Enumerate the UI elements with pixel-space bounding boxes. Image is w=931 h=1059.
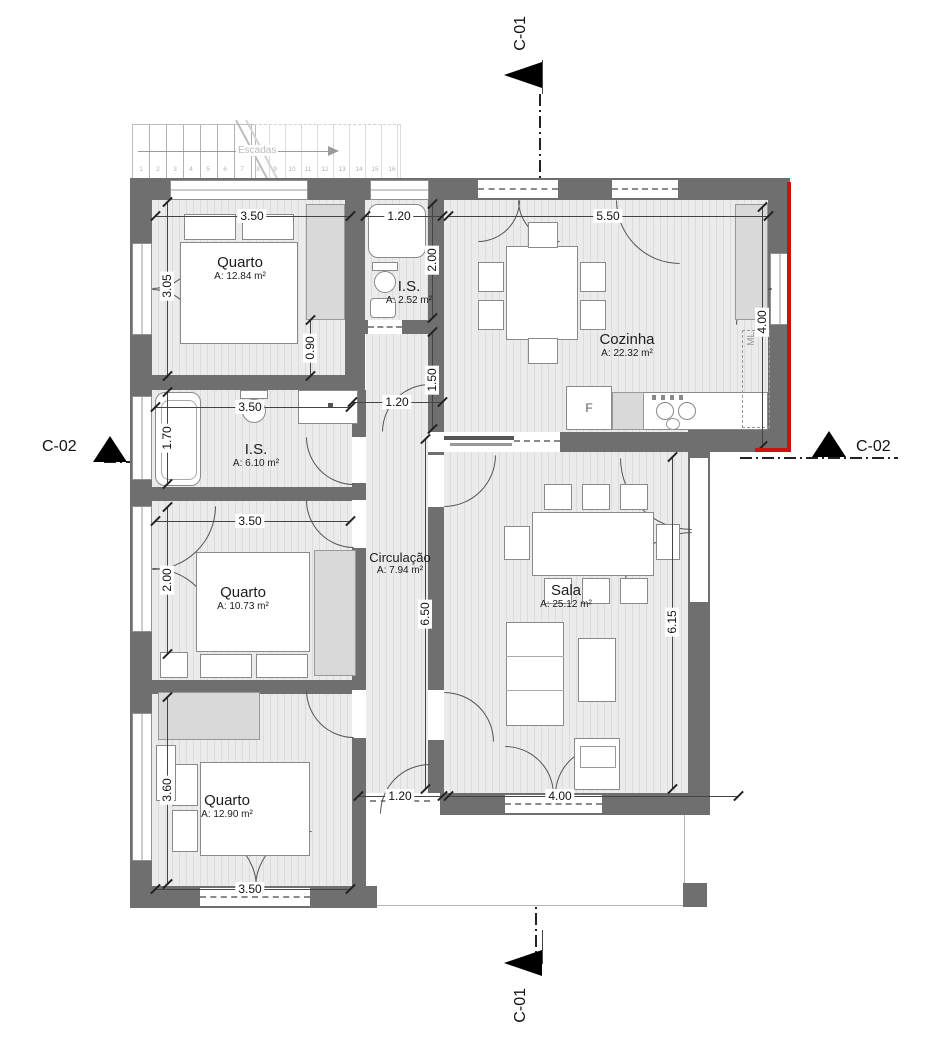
bed-pillow xyxy=(184,214,236,240)
section-label-c02-left: C-02 xyxy=(42,438,77,456)
stair-number: 12 xyxy=(318,166,332,173)
door-threshold-quarto3 xyxy=(200,896,310,898)
door-opening-sala-top xyxy=(428,455,444,507)
door-opening-sala-lower xyxy=(428,690,444,740)
dimension-label: 6.50 xyxy=(418,599,432,628)
stair-number: 5 xyxy=(201,166,215,173)
stair-number: 16 xyxy=(385,166,399,173)
wall-corridor-right-upper xyxy=(428,200,444,432)
room-area: A: 12.90 m² xyxy=(201,809,253,820)
window-quarto1-left xyxy=(132,243,152,335)
stair-number: 11 xyxy=(301,166,315,173)
sofa-cushion-line xyxy=(506,690,564,691)
kitchen-counter-segment xyxy=(612,392,644,430)
room-name: I.S. xyxy=(386,278,432,295)
room-label-quarto2: Quarto A: 10.73 m² xyxy=(217,584,269,612)
door-opening-quarto3 xyxy=(352,690,366,738)
wardrobe xyxy=(314,550,356,676)
room-name: Sala xyxy=(540,582,592,599)
chair xyxy=(544,484,572,510)
dimension-label: 0.90 xyxy=(303,333,317,362)
door-threshold-sala xyxy=(505,803,602,805)
dimension-label: 3.60 xyxy=(160,775,174,804)
stair-number: 13 xyxy=(335,166,349,173)
stair-number: 10 xyxy=(285,166,299,173)
sliding-door xyxy=(450,443,512,446)
room-label-sala: Sala A: 25.12 m² xyxy=(540,582,592,610)
stairs-direction-line xyxy=(138,151,328,152)
wardrobe xyxy=(158,692,260,740)
dimension-label: 1.20 xyxy=(384,209,413,223)
door-opening-sala-right xyxy=(690,458,708,602)
side-table xyxy=(578,638,616,702)
sliding-door xyxy=(444,436,514,440)
wall-cozinha-sala xyxy=(560,432,690,452)
section-line-c02-right xyxy=(740,457,898,459)
bed-pillow xyxy=(256,654,308,678)
dimension-label: 6.15 xyxy=(665,607,679,636)
dining-table xyxy=(506,246,578,340)
fridge: F xyxy=(566,386,612,430)
room-area: A: 10.73 m² xyxy=(217,601,269,612)
section-label-c01-bottom: C-01 xyxy=(512,988,530,1023)
dimension-label: 2.00 xyxy=(425,245,439,274)
door-threshold-cozinha xyxy=(478,188,558,190)
wardrobe xyxy=(306,204,345,320)
dimension-label: 1.20 xyxy=(385,789,414,803)
section-label-c02-right: C-02 xyxy=(856,438,891,456)
room-name: Quarto xyxy=(217,584,269,601)
room-name: Quarto xyxy=(214,254,266,271)
dimension-label: 5.50 xyxy=(593,209,622,223)
stair-number: 2 xyxy=(151,166,165,173)
floor-plan-canvas: C-01 C-01 C-02 C-02 Escadas 1 2 3 4 5 6 … xyxy=(0,0,931,1059)
chair xyxy=(504,526,530,560)
bed-pillow xyxy=(200,654,252,678)
dimension-line xyxy=(448,796,738,797)
room-name: Circulação xyxy=(369,550,430,565)
dining-table xyxy=(532,512,654,576)
chair xyxy=(478,262,504,292)
door-threshold-is-small xyxy=(368,326,402,328)
dimension-label: 3.50 xyxy=(235,514,264,528)
stair-number: 6 xyxy=(218,166,232,173)
chair xyxy=(528,222,558,248)
stair-number: 14 xyxy=(352,166,366,173)
dimension-label: 1.20 xyxy=(382,395,411,409)
dimension-label: 1.70 xyxy=(160,423,174,452)
chair xyxy=(620,484,648,510)
sink-bowl xyxy=(678,402,696,420)
sofa xyxy=(506,622,564,726)
dimension-label: 4.00 xyxy=(755,307,769,336)
chair xyxy=(620,578,648,604)
dimension-label: 3.05 xyxy=(160,271,174,300)
kitchen-cabinet xyxy=(735,204,768,320)
room-name: Cozinha xyxy=(599,331,654,348)
room-area: A: 25.12 m² xyxy=(540,599,592,610)
wall-is-main-bottom xyxy=(152,487,365,501)
window-quarto1-top xyxy=(170,180,308,200)
stair-number: 15 xyxy=(368,166,382,173)
toilet-tank xyxy=(372,262,398,271)
room-area: A: 12.84 m² xyxy=(214,271,266,282)
bed-pillow xyxy=(172,810,198,852)
section-cut-highlight-horizontal xyxy=(755,448,791,452)
room-label-is-main: I.S. A: 6.10 m² xyxy=(233,441,279,469)
wall-quarto1-right xyxy=(345,200,365,390)
room-name: Quarto xyxy=(201,792,253,809)
terrace-corner-pier xyxy=(683,883,707,907)
wall-quarto1-bottom xyxy=(152,375,352,390)
section-marker-c01-bottom xyxy=(504,950,542,976)
dimension-label: 1.50 xyxy=(425,365,439,394)
door-opening-is-main xyxy=(352,437,366,483)
stair-number: 8 xyxy=(251,166,265,173)
room-label-cozinha: Cozinha A: 22.32 m² xyxy=(599,331,654,359)
door-opening-quarto2 xyxy=(352,500,366,548)
window-is-main-left xyxy=(132,396,152,480)
sink-bowl xyxy=(666,418,680,430)
toilet-tank xyxy=(240,390,268,399)
stairs-label: Escadas xyxy=(236,145,278,156)
stair-number: 3 xyxy=(168,166,182,173)
section-marker-c02-left xyxy=(93,436,127,462)
stair-number: 7 xyxy=(235,166,249,173)
room-label-is-small: I.S. A: 2.52 m² xyxy=(386,278,432,306)
dimension-label: 3.50 xyxy=(237,209,266,223)
room-area: A: 6.10 m² xyxy=(233,458,279,469)
stair-number: 1 xyxy=(134,166,148,173)
window-is-small-top xyxy=(370,180,429,200)
room-area: A: 2.52 m² xyxy=(386,295,432,306)
room-label-quarto3: Quarto A: 12.90 m² xyxy=(201,792,253,820)
chair xyxy=(656,524,680,560)
section-marker-c02-right xyxy=(812,431,846,457)
door-threshold-cozinha-entry xyxy=(612,188,678,190)
sofa-cushion-line xyxy=(506,656,564,657)
chair xyxy=(528,338,558,364)
chair xyxy=(580,300,606,330)
room-area: A: 7.94 m² xyxy=(369,565,430,576)
room-label-quarto1: Quarto A: 12.84 m² xyxy=(214,254,266,282)
room-name: I.S. xyxy=(233,441,279,458)
opening-dashed-cozinha-sala xyxy=(514,440,560,442)
chair xyxy=(580,262,606,292)
stair-number: 9 xyxy=(268,166,282,173)
stove-knobs xyxy=(652,395,688,400)
section-marker-stem xyxy=(542,930,543,964)
tv xyxy=(580,746,616,768)
window-quarto2-left xyxy=(132,506,152,632)
dimension-label: 2.00 xyxy=(160,565,174,594)
chair xyxy=(478,300,504,330)
chair xyxy=(582,484,610,510)
stairs: Escadas 1 2 3 4 5 6 7 8 9 10 11 12 13 14… xyxy=(0,0,931,200)
dimension-label: 4.00 xyxy=(545,789,574,803)
room-label-circulacao: Circulação A: 7.94 m² xyxy=(369,550,430,576)
dimension-label: 3.50 xyxy=(235,400,264,414)
stair-number: 4 xyxy=(184,166,198,173)
dimension-label: 3.50 xyxy=(235,882,264,896)
terrace xyxy=(366,815,685,906)
room-area: A: 22.32 m² xyxy=(599,348,654,359)
section-cut-highlight-vertical xyxy=(787,182,791,452)
stairs-direction-arrow xyxy=(328,146,339,156)
window-quarto3-left xyxy=(132,713,152,861)
